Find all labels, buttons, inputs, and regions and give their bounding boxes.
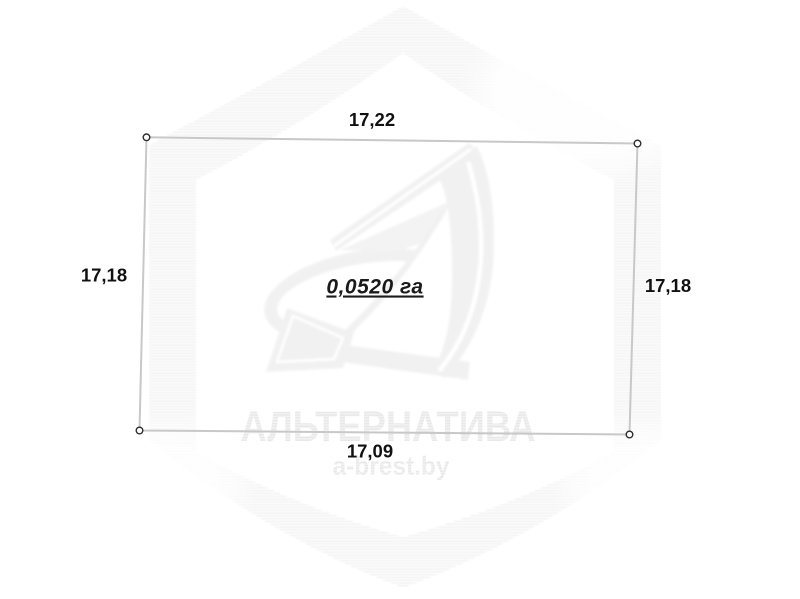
- svg-text:17,09: 17,09: [347, 441, 393, 462]
- svg-text:17,18: 17,18: [81, 265, 127, 286]
- svg-text:17,18: 17,18: [645, 275, 691, 296]
- svg-text:0,0520 га: 0,0520 га: [326, 276, 423, 299]
- svg-text:17,22: 17,22: [349, 109, 395, 130]
